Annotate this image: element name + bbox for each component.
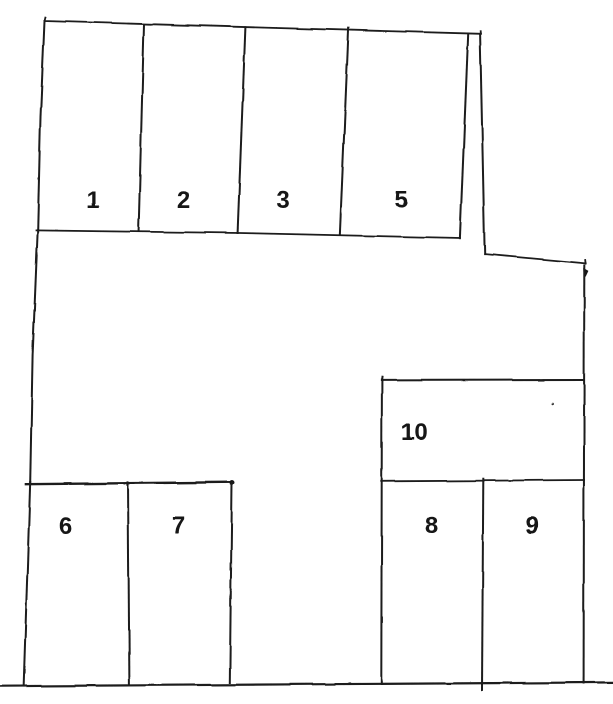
svg-text:10: 10 bbox=[401, 419, 428, 446]
svg-text:2: 2 bbox=[177, 187, 190, 214]
svg-text:5: 5 bbox=[395, 187, 408, 214]
svg-text:6: 6 bbox=[59, 513, 72, 540]
svg-text:1: 1 bbox=[87, 187, 100, 214]
svg-text:7: 7 bbox=[172, 513, 185, 540]
svg-text:9: 9 bbox=[526, 513, 539, 540]
svg-text:3: 3 bbox=[276, 187, 289, 214]
svg-text:8: 8 bbox=[425, 513, 438, 540]
